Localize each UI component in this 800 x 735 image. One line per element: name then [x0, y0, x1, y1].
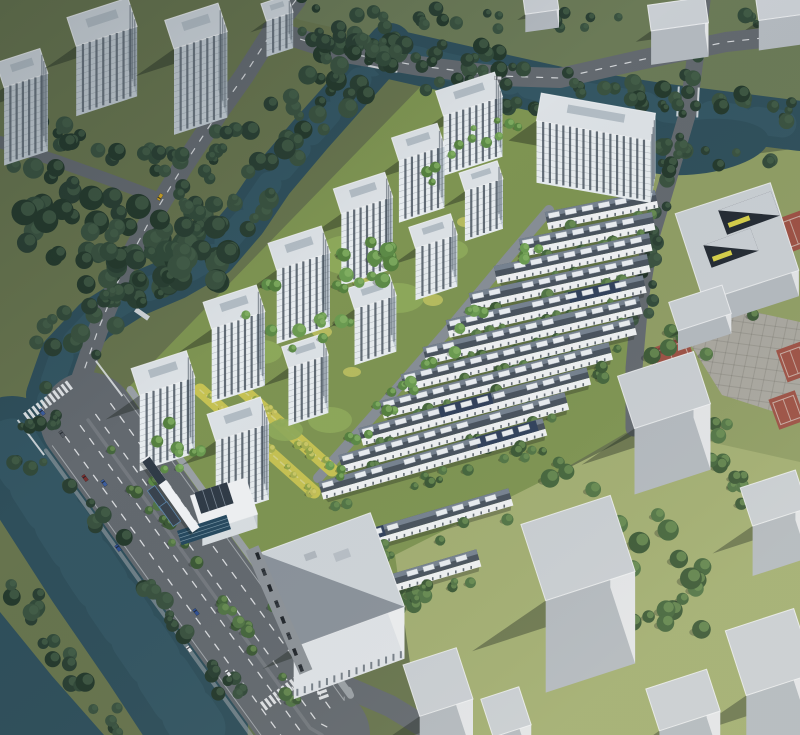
aerial-development-rendering	[0, 0, 800, 735]
lighting-overlay	[0, 0, 800, 735]
aerial-rendering-stage	[0, 0, 800, 735]
